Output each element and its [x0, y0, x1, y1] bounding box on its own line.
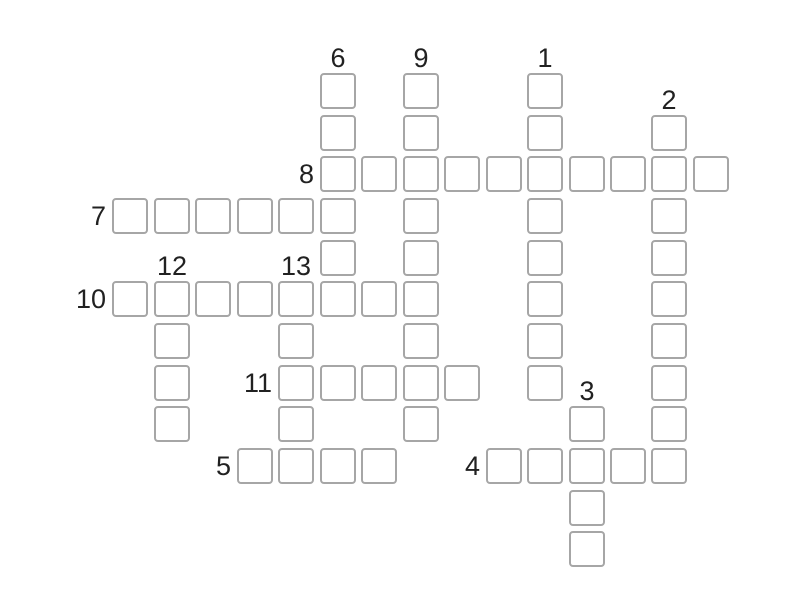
grid-cell[interactable] — [403, 365, 439, 401]
grid-cell[interactable] — [651, 365, 687, 401]
grid-cell[interactable] — [651, 281, 687, 317]
grid-cell[interactable] — [361, 365, 397, 401]
grid-cell[interactable] — [237, 281, 273, 317]
grid-cell[interactable] — [112, 281, 148, 317]
grid-cell[interactable] — [527, 115, 563, 151]
grid-cell[interactable] — [486, 448, 522, 484]
grid-cell[interactable] — [651, 323, 687, 359]
clue-number-6: 6 — [298, 44, 378, 72]
grid-cell[interactable] — [237, 198, 273, 234]
grid-cell[interactable] — [154, 365, 190, 401]
grid-cell[interactable] — [569, 531, 605, 567]
grid-cell[interactable] — [651, 198, 687, 234]
grid-cell[interactable] — [320, 73, 356, 109]
grid-cell[interactable] — [320, 156, 356, 192]
grid-cell[interactable] — [569, 490, 605, 526]
grid-cell[interactable] — [651, 156, 687, 192]
clue-number-4: 4 — [400, 448, 480, 484]
grid-cell[interactable] — [651, 115, 687, 151]
grid-cell[interactable] — [527, 198, 563, 234]
grid-cell[interactable] — [651, 448, 687, 484]
clue-number-2: 2 — [629, 86, 709, 114]
clue-number-10: 10 — [26, 281, 106, 317]
grid-cell[interactable] — [154, 406, 190, 442]
clue-number-3: 3 — [547, 377, 627, 405]
clue-number-7: 7 — [26, 198, 106, 234]
grid-cell[interactable] — [278, 365, 314, 401]
grid-cell[interactable] — [278, 281, 314, 317]
grid-cell[interactable] — [320, 115, 356, 151]
grid-cell[interactable] — [278, 198, 314, 234]
grid-cell[interactable] — [569, 156, 605, 192]
grid-cell[interactable] — [651, 406, 687, 442]
grid-cell[interactable] — [527, 73, 563, 109]
grid-cell[interactable] — [569, 406, 605, 442]
clue-number-12: 12 — [132, 252, 212, 280]
grid-cell[interactable] — [527, 281, 563, 317]
grid-cell[interactable] — [361, 281, 397, 317]
grid-cell[interactable] — [569, 448, 605, 484]
grid-cell[interactable] — [527, 156, 563, 192]
clue-number-1: 1 — [505, 44, 585, 72]
grid-cell[interactable] — [651, 240, 687, 276]
grid-cell[interactable] — [403, 156, 439, 192]
grid-cell[interactable] — [320, 198, 356, 234]
grid-cell[interactable] — [320, 281, 356, 317]
grid-cell[interactable] — [444, 365, 480, 401]
grid-cell[interactable] — [112, 198, 148, 234]
clue-number-11: 11 — [192, 365, 272, 401]
grid-cell[interactable] — [361, 156, 397, 192]
grid-cell[interactable] — [527, 448, 563, 484]
grid-cell[interactable] — [403, 240, 439, 276]
grid-cell[interactable] — [610, 156, 646, 192]
crossword-grid: 87101154691212133 — [0, 0, 800, 600]
grid-cell[interactable] — [527, 240, 563, 276]
grid-cell[interactable] — [278, 323, 314, 359]
clue-number-13: 13 — [256, 252, 336, 280]
grid-cell[interactable] — [154, 323, 190, 359]
clue-number-9: 9 — [381, 44, 461, 72]
clue-number-5: 5 — [151, 448, 231, 484]
grid-cell[interactable] — [403, 406, 439, 442]
grid-cell[interactable] — [320, 448, 356, 484]
grid-cell[interactable] — [527, 323, 563, 359]
grid-cell[interactable] — [320, 365, 356, 401]
grid-cell[interactable] — [403, 323, 439, 359]
grid-cell[interactable] — [195, 198, 231, 234]
grid-cell[interactable] — [486, 156, 522, 192]
grid-cell[interactable] — [278, 406, 314, 442]
grid-cell[interactable] — [403, 198, 439, 234]
grid-cell[interactable] — [610, 448, 646, 484]
grid-cell[interactable] — [444, 156, 480, 192]
grid-cell[interactable] — [361, 448, 397, 484]
grid-cell[interactable] — [403, 115, 439, 151]
grid-cell[interactable] — [154, 281, 190, 317]
grid-cell[interactable] — [693, 156, 729, 192]
grid-cell[interactable] — [237, 448, 273, 484]
grid-cell[interactable] — [278, 448, 314, 484]
grid-cell[interactable] — [195, 281, 231, 317]
grid-cell[interactable] — [403, 281, 439, 317]
grid-cell[interactable] — [154, 198, 190, 234]
grid-cell[interactable] — [403, 73, 439, 109]
clue-number-8: 8 — [234, 156, 314, 192]
